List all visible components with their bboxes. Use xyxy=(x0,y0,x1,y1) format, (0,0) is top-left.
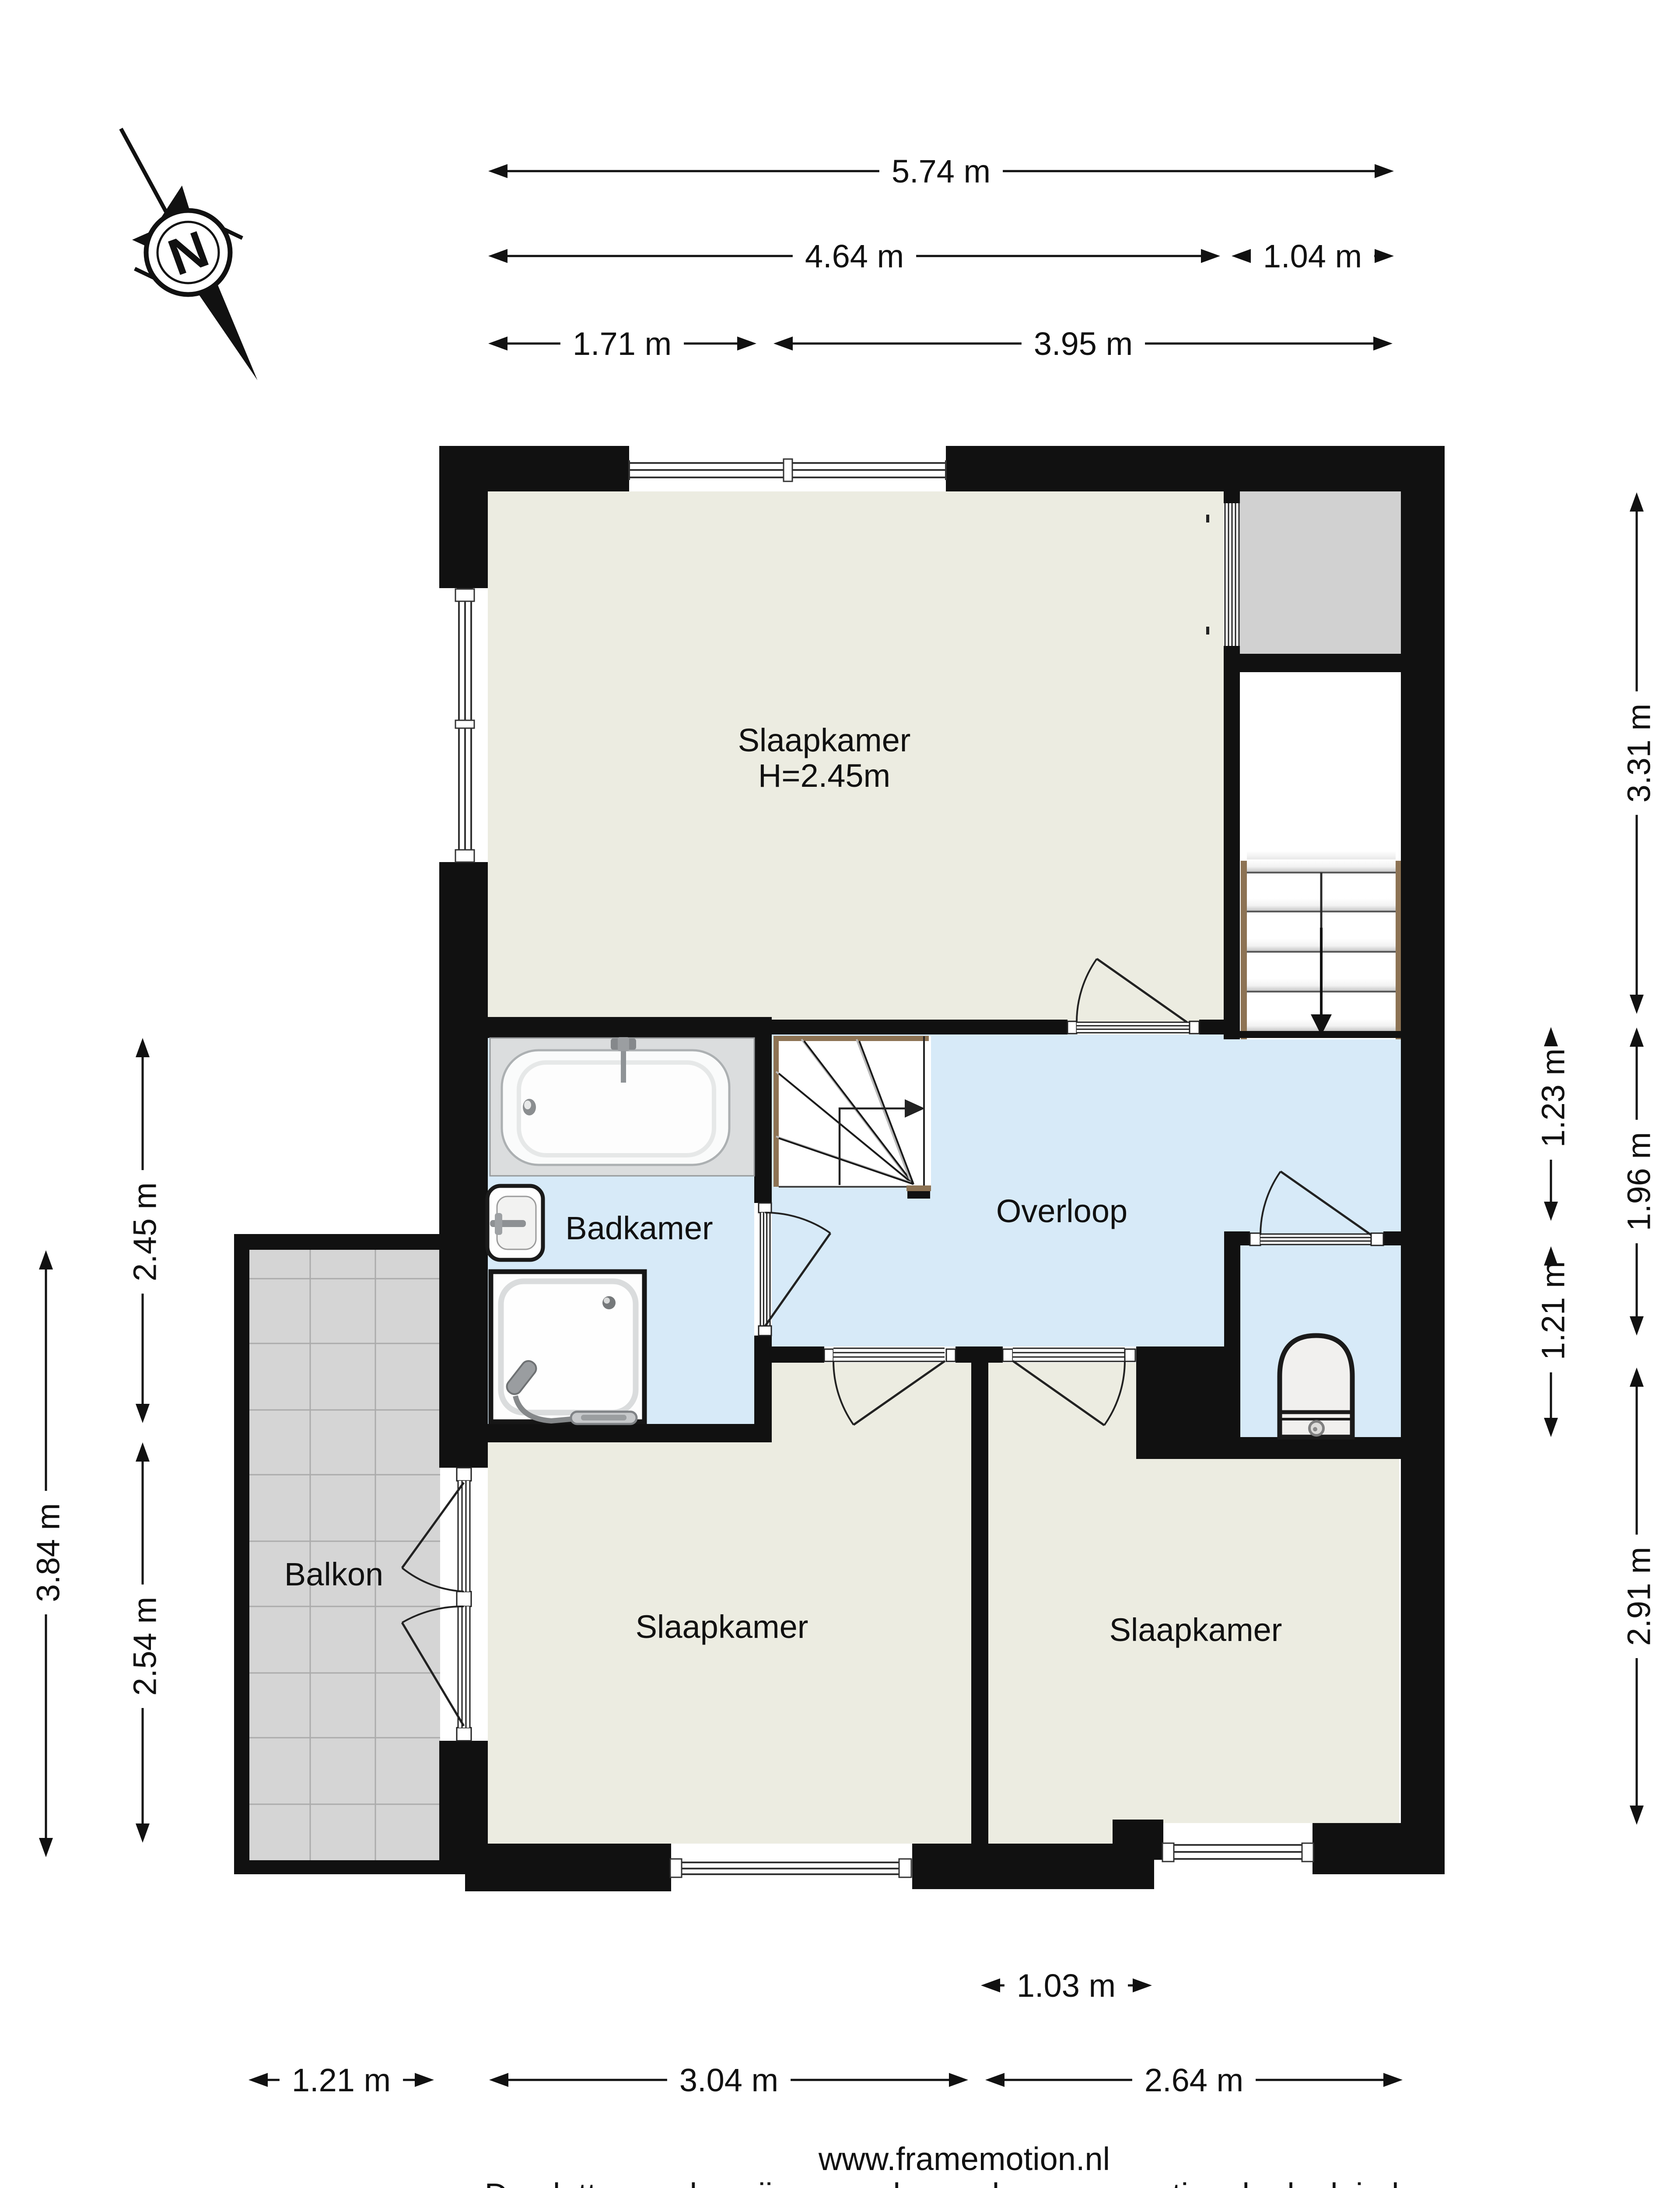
svg-text:Balkon: Balkon xyxy=(284,1556,383,1592)
svg-text:Overloop: Overloop xyxy=(996,1193,1127,1229)
svg-text:1.71 m: 1.71 m xyxy=(573,326,672,362)
svg-text:www.framemotion.nl: www.framemotion.nl xyxy=(818,2141,1110,2177)
svg-text:Slaapkamer: Slaapkamer xyxy=(1109,1612,1282,1648)
svg-text:3.31 m: 3.31 m xyxy=(1621,704,1657,803)
svg-text:3.04 m: 3.04 m xyxy=(679,2062,778,2098)
svg-text:1.21 m: 1.21 m xyxy=(1535,1261,1571,1360)
svg-text:1.04 m: 1.04 m xyxy=(1263,238,1362,274)
svg-text:5.74 m: 5.74 m xyxy=(892,153,990,189)
svg-text:1.21 m: 1.21 m xyxy=(292,2062,391,2098)
svg-text:Slaapkamer: Slaapkamer xyxy=(636,1609,808,1645)
svg-text:De plattegronden zijn geproduc: De plattegronden zijn geproduceerd voor … xyxy=(485,2177,1444,2188)
svg-text:1.96 m: 1.96 m xyxy=(1621,1132,1657,1231)
svg-text:H=2.45m: H=2.45m xyxy=(758,757,890,794)
svg-text:3.95 m: 3.95 m xyxy=(1034,326,1133,362)
svg-text:1.03 m: 1.03 m xyxy=(1017,1967,1116,2004)
svg-text:2.64 m: 2.64 m xyxy=(1144,2062,1243,2098)
svg-text:Badkamer: Badkamer xyxy=(565,1210,713,1246)
svg-text:4.64 m: 4.64 m xyxy=(805,238,904,274)
svg-text:Slaapkamer: Slaapkamer xyxy=(738,722,911,758)
svg-text:2.91 m: 2.91 m xyxy=(1621,1547,1657,1646)
svg-text:2.54 m: 2.54 m xyxy=(127,1597,163,1696)
svg-text:3.84 m: 3.84 m xyxy=(30,1503,66,1602)
svg-text:2.45 m: 2.45 m xyxy=(127,1182,163,1281)
svg-text:1.23 m: 1.23 m xyxy=(1535,1048,1571,1147)
